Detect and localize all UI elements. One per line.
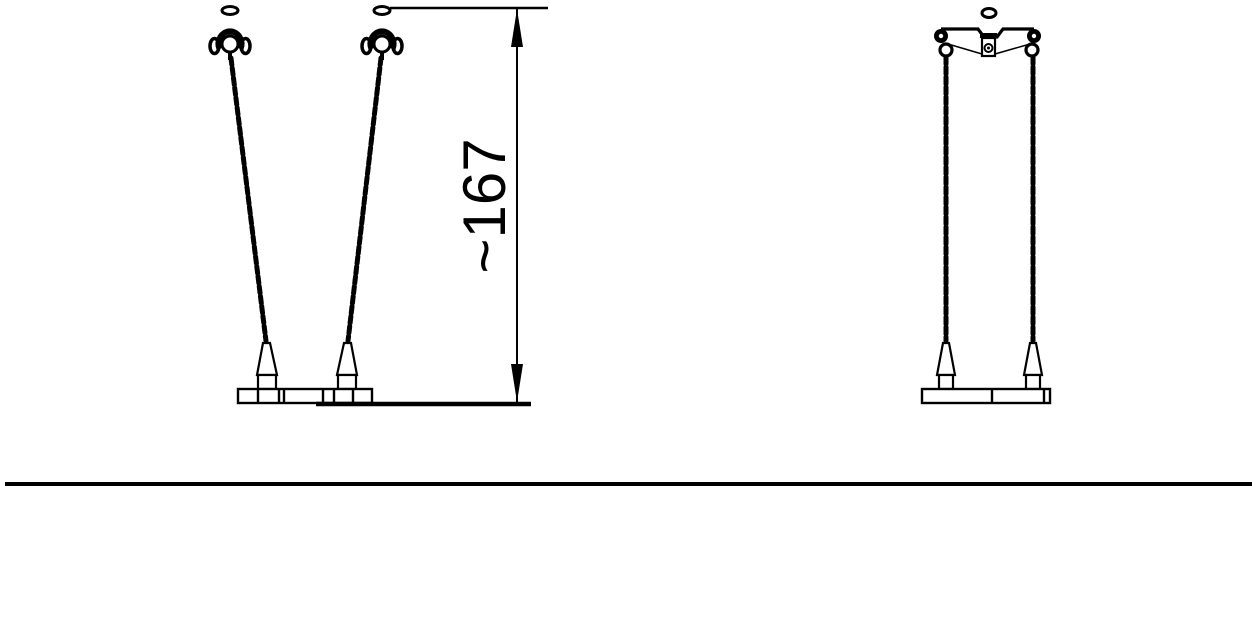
- shackle-ring-right-icon: [1026, 44, 1038, 56]
- chain-front-left: [231, 58, 266, 341]
- swing-hanger-front-left-icon: [210, 7, 250, 61]
- shackle-ring-left-icon: [940, 44, 952, 56]
- hanger-pulley-left-icon: [934, 29, 948, 43]
- center-bearing-bracket: [948, 33, 1030, 56]
- title-block: SW990030 1:100: [58, 518, 355, 642]
- swing-hanger-front-right-icon: [362, 7, 402, 61]
- swing-seat-front: [238, 389, 372, 403]
- swing-seat-side: [922, 389, 1050, 403]
- chain-front-right: [348, 58, 381, 341]
- height-dimension: ~167: [390, 8, 548, 402]
- technical-drawing-sheet: ~167: [0, 0, 1260, 642]
- seat-connector-front-right: [337, 343, 357, 389]
- top-link-side-icon: [982, 9, 996, 18]
- hanger-pulley-right-icon: [1027, 29, 1041, 43]
- dimension-height-label: ~167: [451, 138, 518, 273]
- seat-connector-front-left: [257, 343, 277, 389]
- arrowhead-up-icon: [511, 9, 523, 47]
- side-view: [922, 9, 1050, 404]
- seat-connector-side-right: [1024, 343, 1042, 389]
- seat-connector-side-left: [937, 343, 955, 389]
- arrowhead-down-icon: [511, 364, 523, 402]
